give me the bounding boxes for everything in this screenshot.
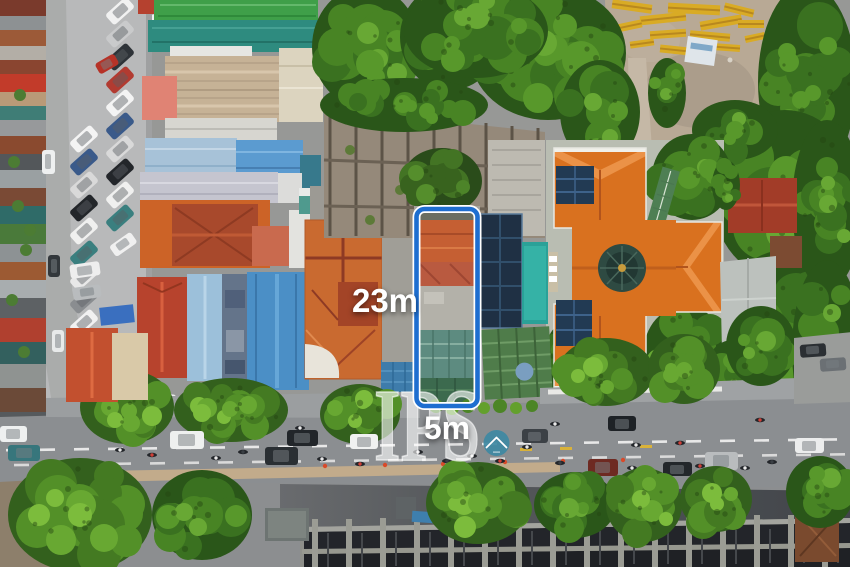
svg-text:23m: 23m xyxy=(352,282,418,319)
svg-text:5m: 5m xyxy=(424,410,470,446)
